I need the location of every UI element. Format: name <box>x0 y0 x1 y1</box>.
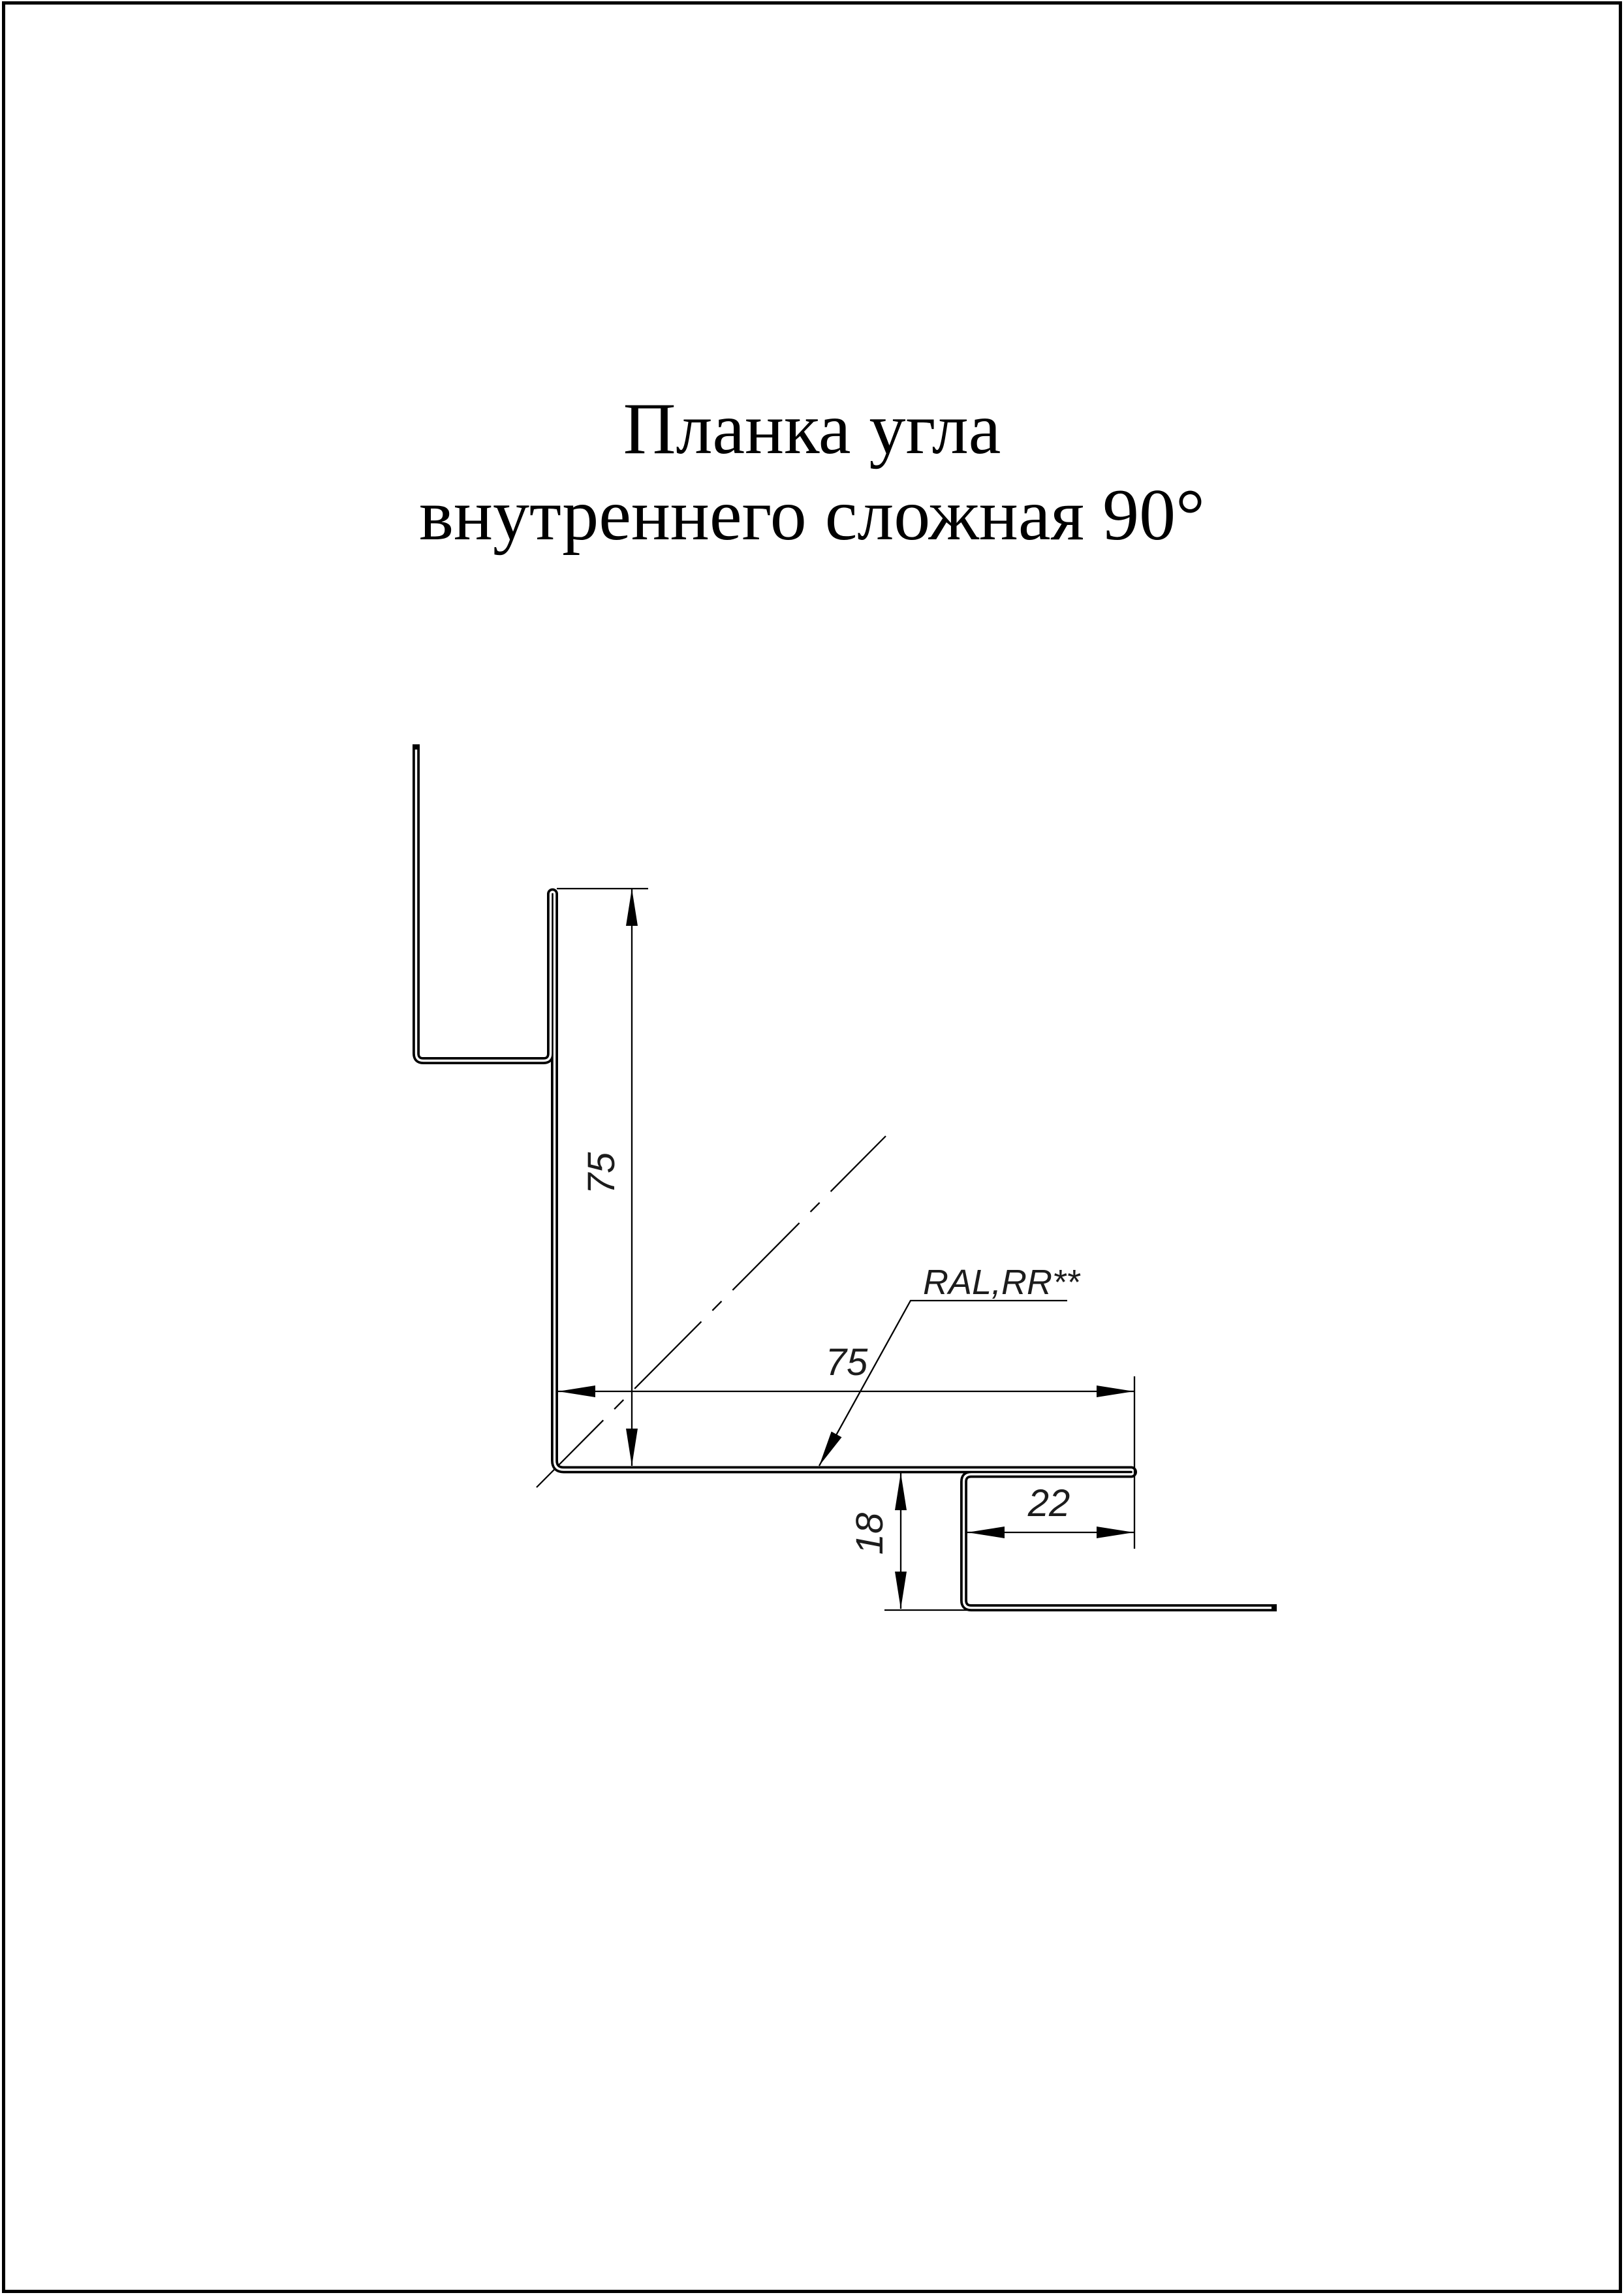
dim-horizontal-75-arrow-left <box>558 1385 595 1397</box>
coating-label: RAL,RR** <box>923 1263 1081 1302</box>
dim-22-label: 22 <box>1027 1482 1070 1525</box>
page-border <box>4 3 1621 2292</box>
dim-18-arrow-bottom <box>895 1572 907 1609</box>
dim-horizontal-75-arrow-right <box>1097 1385 1134 1397</box>
dim-22-arrow-left <box>967 1527 1005 1538</box>
drawing-title-line2: внутреннего сложная 90° <box>419 475 1205 556</box>
dim-horizontal-75-label: 75 <box>826 1341 868 1384</box>
drawing-page: Планка угла внутреннего сложная 90° 75 7… <box>0 0 1624 2295</box>
dim-18-label: 18 <box>849 1513 891 1555</box>
dim-vertical-75-arrow-top <box>626 889 638 926</box>
dim-22-arrow-right <box>1097 1527 1134 1538</box>
technical-drawing-canvas: Планка угла внутреннего сложная 90° 75 7… <box>0 0 1624 2295</box>
dim-18-arrow-top <box>895 1473 907 1510</box>
drawing-title-line1: Планка угла <box>623 388 1001 469</box>
dim-vertical-75-label: 75 <box>580 1152 623 1194</box>
dim-vertical-75-arrow-bottom <box>626 1429 638 1466</box>
coating-leader-arrow <box>819 1432 842 1466</box>
